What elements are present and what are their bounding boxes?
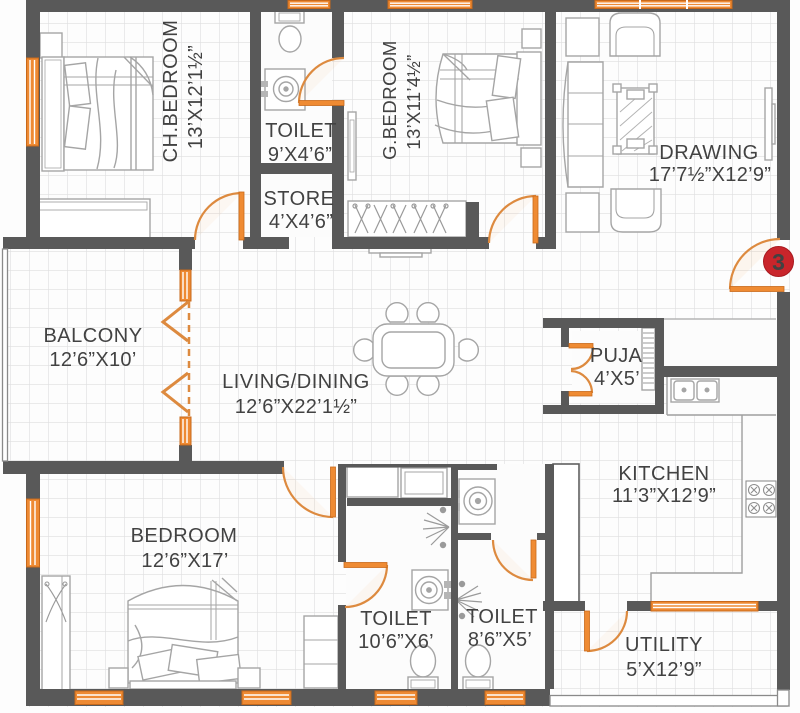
svg-text:UTILITY: UTILITY	[625, 634, 703, 656]
svg-text:BALCONY: BALCONY	[43, 325, 142, 347]
svg-text:10’6”X6’: 10’6”X6’	[358, 631, 434, 653]
svg-text:CH.BEDROOM: CH.BEDROOM	[160, 20, 182, 163]
svg-text:12’6”X10’: 12’6”X10’	[49, 349, 136, 371]
svg-text:BEDROOM: BEDROOM	[131, 525, 238, 547]
svg-text:STORE: STORE	[263, 188, 334, 210]
svg-text:G.BEDROOM: G.BEDROOM	[379, 40, 400, 160]
svg-text:LIVING/DINING: LIVING/DINING	[222, 371, 370, 393]
svg-text:12’6”X17’: 12’6”X17’	[141, 550, 228, 572]
svg-text:4’X4’6”: 4’X4’6”	[269, 211, 333, 233]
svg-text:DRAWING: DRAWING	[659, 142, 758, 164]
svg-text:5’X12’9”: 5’X12’9”	[626, 659, 702, 681]
svg-text:11’3”X12’9”: 11’3”X12’9”	[612, 485, 716, 507]
svg-text:9’X4’6”: 9’X4’6”	[268, 144, 332, 166]
svg-text:4’X5’: 4’X5’	[594, 368, 640, 390]
svg-text:KITCHEN: KITCHEN	[618, 463, 709, 485]
svg-text:TOILET: TOILET	[265, 120, 336, 142]
svg-text:12’6”X22’1½”: 12’6”X22’1½”	[235, 396, 358, 418]
svg-text:13’X12’1½”: 13’X12’1½”	[185, 45, 207, 149]
svg-text:13’X11’4½”: 13’X11’4½”	[403, 54, 424, 149]
svg-text:TOILET: TOILET	[466, 606, 537, 628]
svg-text:17’7½”X12’9”: 17’7½”X12’9”	[649, 164, 772, 186]
svg-text:PUJA: PUJA	[590, 345, 643, 367]
svg-text:3: 3	[772, 249, 785, 275]
svg-text:8’6”X5’: 8’6”X5’	[468, 629, 532, 651]
svg-text:TOILET: TOILET	[360, 608, 431, 630]
